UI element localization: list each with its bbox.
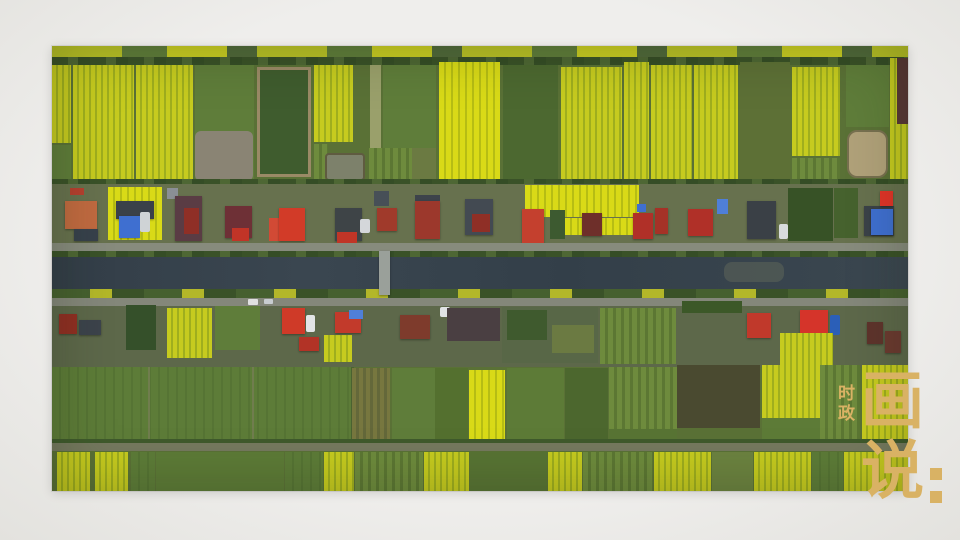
house-roof-brown <box>400 315 430 339</box>
green-field <box>846 65 889 127</box>
green-field-pale <box>712 452 753 491</box>
green-rows <box>600 308 676 364</box>
house-ridge-red <box>472 214 490 232</box>
green-field <box>52 145 71 181</box>
green-field <box>156 452 284 491</box>
house-roof-red <box>688 209 713 236</box>
house-roof-brown <box>867 322 883 344</box>
olive-field <box>740 62 790 179</box>
shed-red <box>70 188 84 195</box>
tag-shizheng: 时政 <box>836 384 853 424</box>
house-roof-red <box>337 232 357 243</box>
house-roof-pink <box>269 218 279 241</box>
green-field-dark <box>565 368 608 442</box>
trees <box>126 305 156 350</box>
rape-field <box>651 65 692 179</box>
rape-rows <box>548 452 582 491</box>
house-roof-orange <box>65 201 97 229</box>
field-strip-top <box>52 46 908 57</box>
house-stripe-red <box>232 228 249 241</box>
house-roof-red <box>655 208 668 234</box>
garden-rape <box>780 333 833 366</box>
paddy-field <box>52 367 352 439</box>
rape-rows <box>762 365 820 418</box>
car-white <box>360 219 370 233</box>
house-roof-red <box>299 337 319 351</box>
tarp-blue <box>349 310 363 319</box>
colon-dot-bottom <box>930 491 942 503</box>
green-field <box>507 368 564 442</box>
garden-rows <box>792 158 840 180</box>
road-north <box>52 243 908 251</box>
hedge-line <box>52 179 908 184</box>
tilled-dark-plot <box>447 308 500 341</box>
rape-rows <box>654 452 711 491</box>
house-roof-red <box>415 201 440 239</box>
car-white <box>140 212 150 232</box>
tarp-blue <box>717 199 728 214</box>
house-roof-red <box>747 313 771 338</box>
green-rows <box>609 367 677 429</box>
road-bottom <box>52 443 908 451</box>
garden-plot-light <box>552 325 594 353</box>
rape-field <box>136 65 193 181</box>
car-white <box>248 299 258 305</box>
dark-strip <box>897 58 908 124</box>
house-roof-maroon <box>582 213 602 236</box>
house-roof-bright-red <box>522 209 544 245</box>
tarp-blue <box>637 204 646 212</box>
trees <box>834 188 858 238</box>
shed-dark <box>374 191 389 206</box>
green-field <box>470 452 547 491</box>
road-south <box>52 298 908 306</box>
rape-rows <box>754 452 811 491</box>
rape-field-bright <box>439 62 500 179</box>
house-roof-dark <box>74 229 98 241</box>
path <box>252 367 254 439</box>
rape-field <box>52 65 71 143</box>
rape-rows <box>324 452 354 491</box>
green-rows <box>285 452 323 491</box>
bordered-field <box>257 67 311 177</box>
truck-blue <box>830 315 840 335</box>
house-roof-brown <box>885 331 901 353</box>
garden-plot-dark <box>507 310 547 340</box>
path <box>370 65 381 148</box>
green-rows <box>131 452 155 491</box>
house-roof-red <box>633 213 653 239</box>
rape-field <box>314 65 353 142</box>
house-roof-bright-red <box>279 208 305 241</box>
house-roof-bright-red <box>282 308 305 334</box>
rape-rows <box>95 452 128 491</box>
house-roof-red <box>59 314 77 334</box>
car-white <box>779 224 788 239</box>
tan-pond <box>847 130 888 178</box>
canal-bank-south <box>52 289 908 298</box>
shed-green <box>550 210 565 239</box>
green-field-dark <box>435 368 468 442</box>
rape-strip <box>469 370 505 441</box>
car-white <box>264 299 273 304</box>
path <box>148 367 150 439</box>
rape-field <box>73 65 134 181</box>
rape-field <box>694 65 738 179</box>
house-roof-red <box>377 208 397 231</box>
house-roof-charcoal <box>747 201 776 239</box>
bridge <box>379 251 390 295</box>
title-huashuo: 画说 <box>852 367 918 507</box>
house-roof-blue <box>119 216 140 238</box>
title-colon <box>930 468 942 514</box>
pond <box>325 153 365 181</box>
garden-rape <box>324 335 352 362</box>
green-field-dark <box>503 65 558 181</box>
green-field <box>383 65 436 148</box>
green-rows <box>355 452 423 491</box>
green-rows <box>812 452 843 491</box>
green-field <box>392 368 435 442</box>
rape-field <box>624 62 649 179</box>
house-roof-dark <box>79 320 101 335</box>
tilled-olive-plot <box>677 365 760 428</box>
house-roof-bright-red <box>880 191 893 206</box>
tilled-gray-plot <box>195 131 253 181</box>
rape-field <box>792 67 840 156</box>
page-background: 时政 画说 <box>0 0 960 540</box>
green-field <box>215 306 260 350</box>
brown-rows <box>352 368 390 442</box>
garden-rape <box>167 308 212 358</box>
colon-dot-top <box>930 468 942 480</box>
orchard <box>788 188 833 241</box>
water-debris <box>724 262 784 282</box>
van-white <box>306 315 315 332</box>
trees <box>682 301 742 313</box>
house-roof-blue <box>871 209 893 235</box>
aerial-photo <box>52 46 908 491</box>
rape-rows <box>424 452 469 491</box>
rape-field <box>561 67 622 179</box>
green-rows <box>583 452 653 491</box>
house-ridge-red <box>184 208 199 234</box>
rape-rows <box>57 452 90 491</box>
